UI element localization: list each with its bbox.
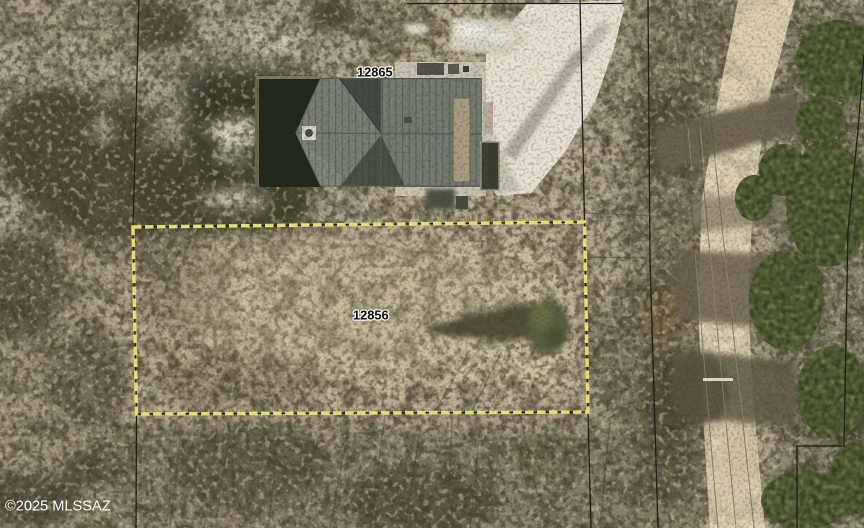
svg-text:12865: 12865 [357,64,393,79]
svg-text:12856: 12856 [353,307,389,322]
svg-text:©2025 MLSSAZ: ©2025 MLSSAZ [5,499,111,515]
